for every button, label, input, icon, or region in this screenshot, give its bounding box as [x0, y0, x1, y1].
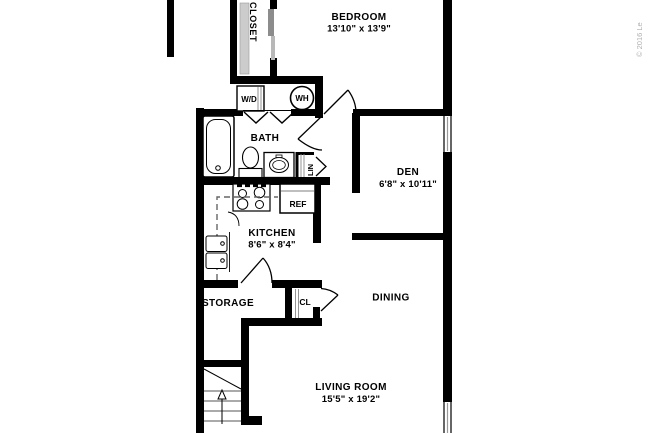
floor-plan-drawing: W/D WH LIN	[0, 0, 650, 433]
dining-label: DINING	[372, 293, 409, 304]
closet-sliding-door	[268, 9, 275, 60]
wall	[230, 0, 237, 84]
bedroom-dims: 13'10" x 13'9"	[327, 24, 391, 35]
wall	[352, 233, 443, 240]
staircase	[204, 369, 241, 424]
water-heater-label: WH	[295, 94, 309, 103]
bath-door-swing	[298, 116, 322, 150]
wall	[443, 152, 452, 403]
linen-bifold-door	[316, 157, 326, 176]
den-dims: 6'8" x 10'11"	[379, 179, 437, 190]
bath-label: BATH	[251, 133, 280, 144]
wall	[270, 0, 277, 9]
kitchen-label: KITCHEN	[248, 228, 295, 239]
living-room-label: LIVING ROOM	[315, 382, 387, 393]
storage-label: STORAGE	[202, 298, 254, 309]
floor-plan: W/D WH LIN	[0, 0, 650, 433]
wall	[352, 113, 360, 193]
bathtub	[203, 116, 234, 177]
kitchen-counter-corner	[228, 212, 239, 272]
den-label: DEN	[397, 167, 419, 178]
wall	[196, 360, 249, 367]
wall	[241, 416, 262, 425]
wall	[196, 280, 238, 288]
wall	[270, 58, 277, 80]
wall	[353, 109, 452, 116]
bedroom-label: BEDROOM	[331, 12, 386, 23]
toilet	[239, 147, 262, 178]
wall	[241, 318, 249, 424]
laundry-bifold-doors	[243, 111, 294, 124]
stairs-up-arrow	[218, 390, 226, 424]
linen-label: LIN	[306, 164, 315, 176]
kitchen-dims: 8'6" x 8'4"	[248, 240, 295, 251]
kitchen-door-swing	[241, 258, 272, 283]
closet-shelf	[240, 3, 249, 74]
kitchen-sink	[206, 236, 227, 269]
wall	[167, 0, 174, 57]
living-room-dims: 15'5" x 19'2"	[322, 394, 380, 405]
bedroom-door-swing	[324, 90, 356, 114]
closet-label: CLOSET	[248, 2, 258, 42]
wall	[285, 288, 292, 319]
hall-closet-door-swing	[321, 289, 338, 312]
washer-dryer-label: W/D	[241, 95, 257, 104]
walls	[167, 0, 452, 433]
hall-closet-shelves	[296, 289, 299, 318]
wall	[443, 0, 452, 116]
wall	[241, 318, 322, 326]
hall-closet-label: CL	[299, 297, 310, 307]
refrigerator-label: REF	[290, 199, 307, 209]
wall	[272, 280, 322, 288]
vanity-sink	[264, 153, 294, 178]
living-room-window	[443, 402, 452, 433]
copyright-watermark: © 2016 Le	[635, 22, 644, 57]
den-window	[443, 116, 452, 152]
